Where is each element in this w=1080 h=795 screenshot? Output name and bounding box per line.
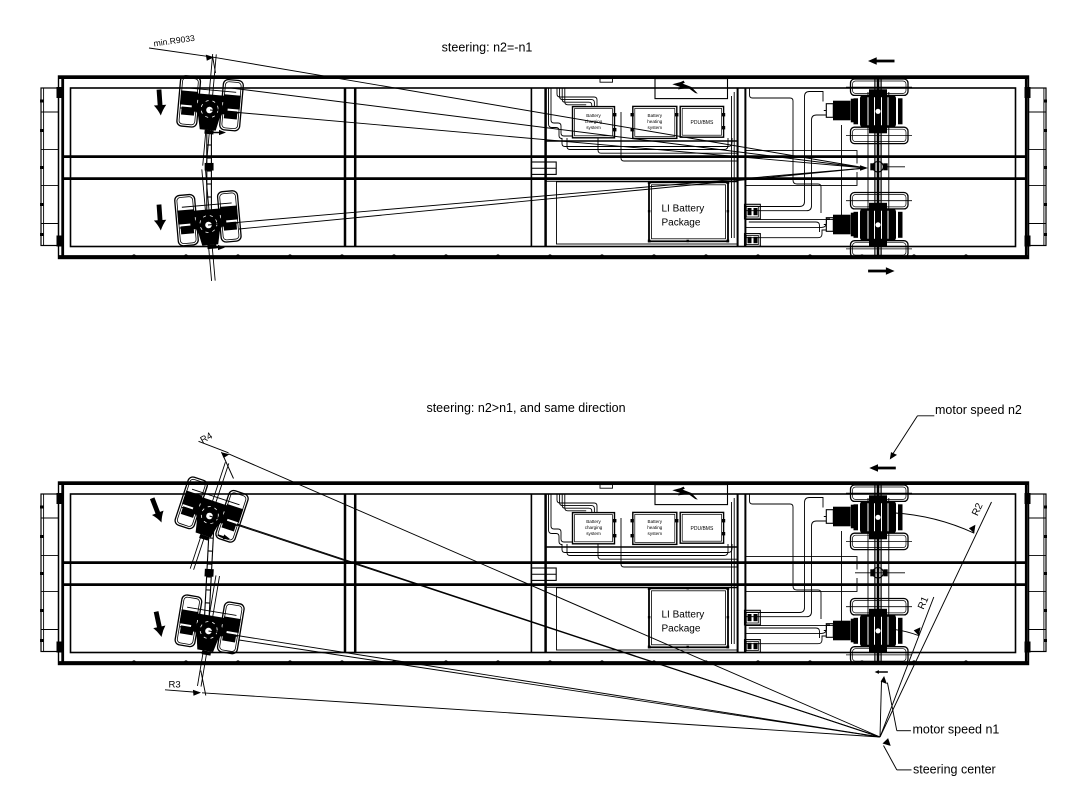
- svg-text:motor speed n1: motor speed n1: [913, 722, 1000, 736]
- svg-text:steering: n2>n1, and same dir: steering: n2>n1, and same direction: [426, 401, 625, 415]
- svg-text:steering center: steering center: [913, 763, 996, 777]
- svg-text:motor speed n2: motor speed n2: [935, 403, 1022, 417]
- svg-text:steering: n2=-n1: steering: n2=-n1: [442, 41, 533, 55]
- svg-text:R3: R3: [169, 680, 181, 691]
